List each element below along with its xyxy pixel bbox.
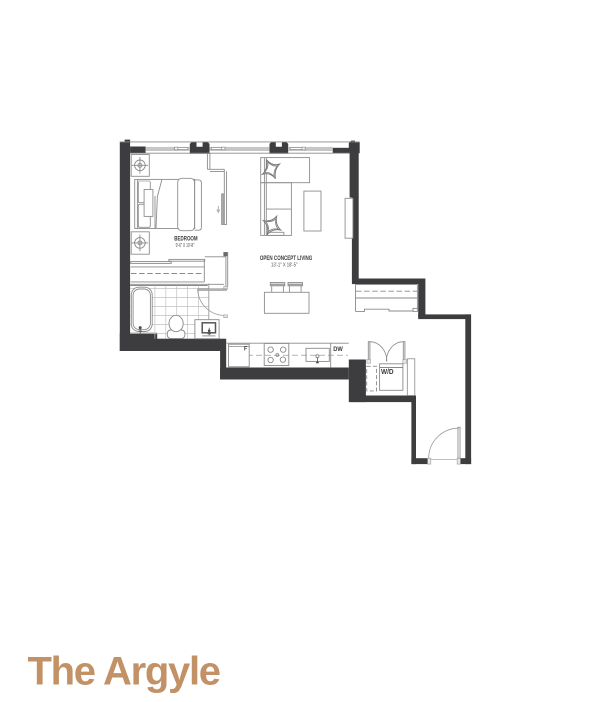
svg-text:W/D: W/D — [381, 367, 394, 376]
svg-text:OPEN CONCEPT LIVING: OPEN CONCEPT LIVING — [260, 255, 312, 262]
svg-text:BEDROOM: BEDROOM — [174, 235, 198, 242]
svg-text:DW: DW — [333, 347, 343, 353]
svg-text:9'-6" X 10'-8": 9'-6" X 10'-8" — [176, 243, 195, 249]
svg-text:F: F — [244, 347, 247, 353]
svg-text:13'-1" X 18'-5": 13'-1" X 18'-5" — [271, 263, 298, 269]
svg-text:The Argyle: The Argyle — [28, 650, 220, 694]
